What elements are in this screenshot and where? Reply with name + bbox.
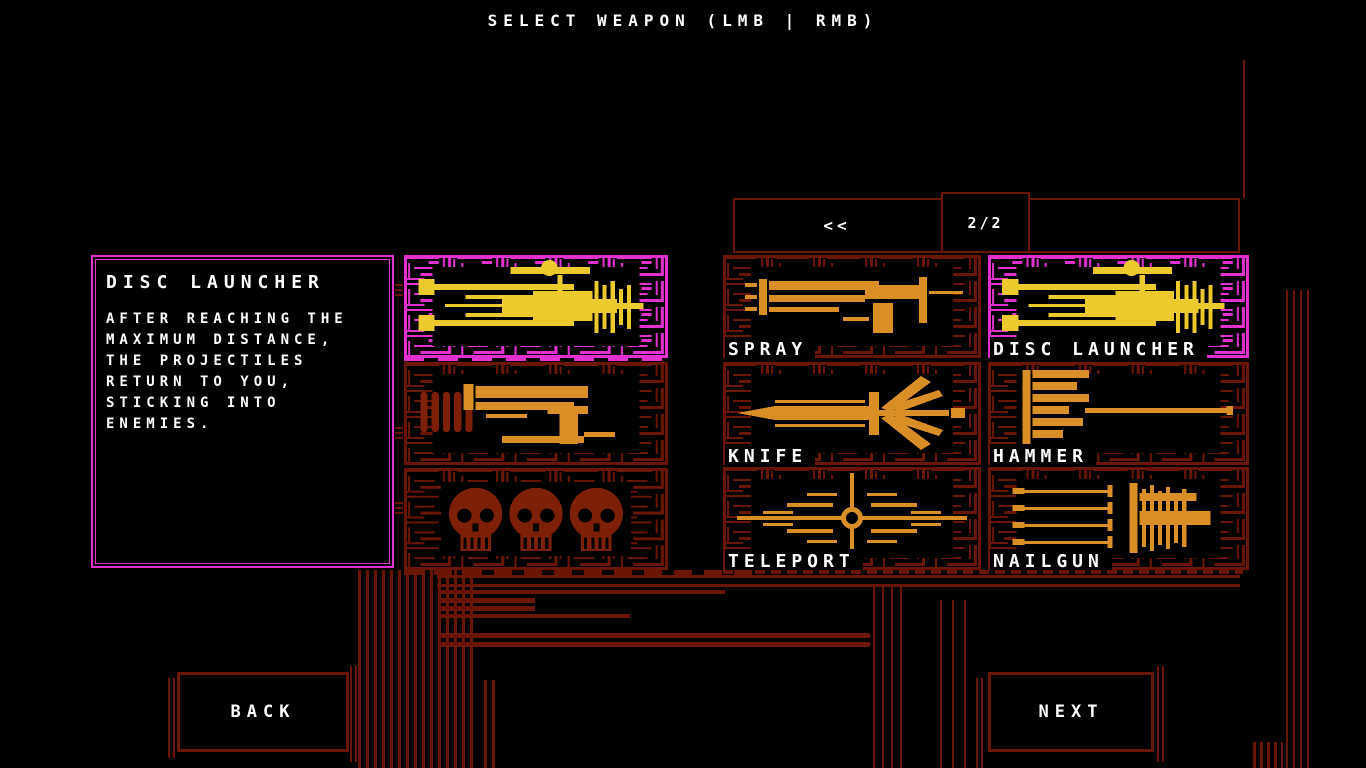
glitch-vertical-lines <box>484 680 498 768</box>
weapon-tile-disc-launcher[interactable]: DISC LAUNCHER <box>988 255 1249 358</box>
glitch-vertical-lines <box>1286 290 1310 768</box>
glitch-ticks <box>395 282 403 296</box>
next-button-label: NEXT <box>1039 702 1104 722</box>
loadout-slot-pistol[interactable] <box>404 362 668 465</box>
glitch-ticks <box>395 500 403 514</box>
weapon-tile-teleport[interactable]: TELEPORT <box>723 467 981 570</box>
weapon-label-teleport: TELEPORT <box>725 549 863 573</box>
back-button[interactable]: BACK <box>177 672 349 752</box>
glitch-bar <box>440 614 630 618</box>
glitch-vertical-lines <box>940 600 976 768</box>
page-title: SELECT WEAPON (LMB | RMB) <box>0 11 1366 30</box>
glitch-button-lines <box>1157 666 1167 762</box>
weapon-description-panel: DISC LAUNCHER AFTER REACHING THE MAXIMUM… <box>91 255 394 568</box>
back-button-label: BACK <box>231 702 296 722</box>
weapon-tile-spray[interactable]: SPRAY <box>723 255 981 358</box>
loadout-slot-disc-launcher[interactable] <box>404 255 668 358</box>
glitch-bar <box>440 598 535 603</box>
glitch-button-lines <box>168 678 175 758</box>
description-line: MAXIMUM DISTANCE, <box>106 330 379 351</box>
glitch-button-lines <box>976 678 985 768</box>
glitch-vertical-lines <box>358 570 474 768</box>
description-line: AFTER REACHING THE <box>106 309 379 330</box>
description-line: ENEMIES. <box>106 414 379 435</box>
weapon-tile-hammer[interactable]: HAMMER <box>988 362 1249 465</box>
prev-page-label: << <box>823 216 850 235</box>
weapon-description-title: DISC LAUNCHER <box>106 272 379 293</box>
glitch-ticks <box>1253 742 1283 768</box>
glitch-ticks <box>395 425 403 439</box>
glitch-vertical-line <box>1243 60 1245 198</box>
weapon-art-pistol-icon <box>404 362 668 465</box>
glitch-button-lines <box>350 666 360 762</box>
weapon-tile-nailgun[interactable]: NAILGUN <box>988 467 1249 570</box>
weapon-label-disc-launcher: DISC LAUNCHER <box>990 337 1207 361</box>
glitch-bar <box>440 590 725 594</box>
description-line: STICKING INTO <box>106 393 379 414</box>
weapon-description-inner: DISC LAUNCHER AFTER REACHING THE MAXIMUM… <box>95 259 390 564</box>
glitch-bar <box>440 606 535 611</box>
glitch-horizontal-lines <box>440 633 870 647</box>
glitch-dashes <box>404 570 760 575</box>
weapon-label-knife: KNIFE <box>725 444 815 468</box>
weapon-art-disc-launcher-icon <box>404 255 668 358</box>
weapon-select-screen: SELECT WEAPON (LMB | RMB) DISC LAUNCHER … <box>0 0 1366 768</box>
weapon-label-hammer: HAMMER <box>990 444 1096 468</box>
description-line: THE PROJECTILES <box>106 351 379 372</box>
weapon-tile-knife[interactable]: KNIFE <box>723 362 981 465</box>
page-indicator: 2/2 <box>941 192 1030 253</box>
next-button[interactable]: NEXT <box>988 672 1154 752</box>
weapon-label-nailgun: NAILGUN <box>990 549 1112 573</box>
next-page-area <box>1031 198 1240 253</box>
glitch-vertical-lines <box>873 584 903 768</box>
weapon-label-spray: SPRAY <box>725 337 815 361</box>
loadout-slot-skulls[interactable] <box>404 468 668 570</box>
prev-page-button[interactable]: << <box>733 198 941 253</box>
page-indicator-label: 2/2 <box>967 214 1003 232</box>
description-line: RETURN TO YOU, <box>106 372 379 393</box>
skulls-art-icon <box>404 468 668 570</box>
glitch-horizontal-lines <box>437 574 1240 587</box>
